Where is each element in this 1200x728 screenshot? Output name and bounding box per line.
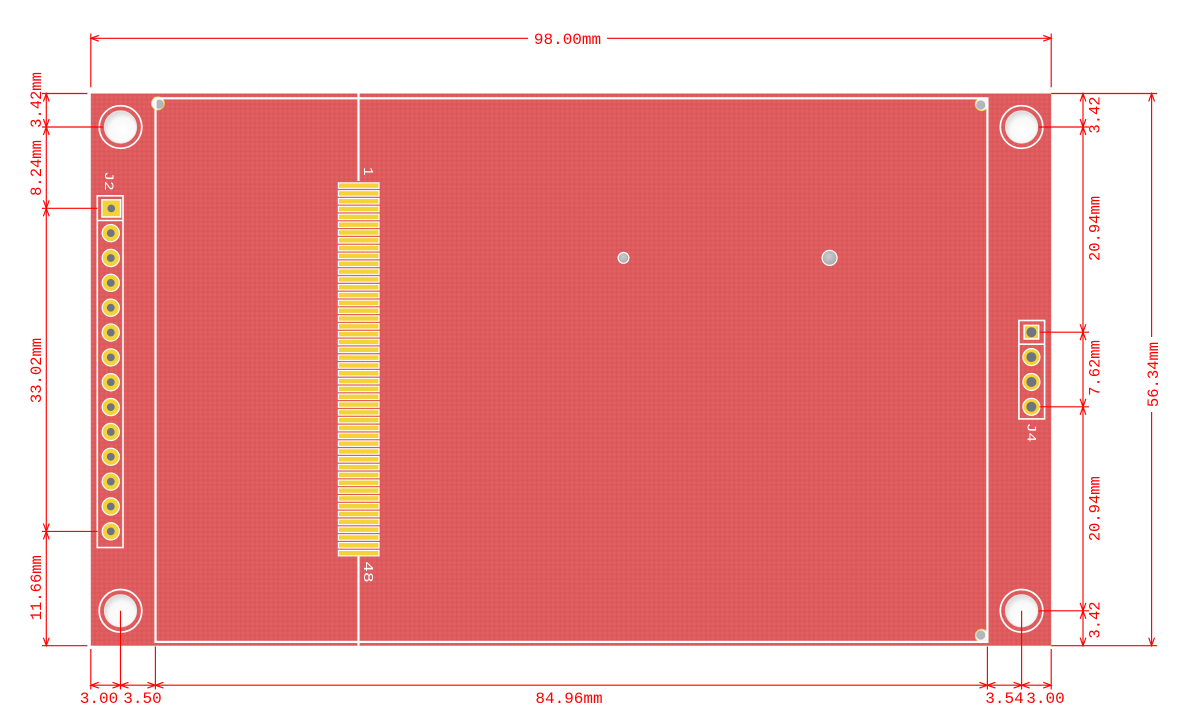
svg-text:84.96mm: 84.96mm [535,690,602,708]
svg-text:56.34mm: 56.34mm [1145,342,1163,407]
svg-text:48: 48 [359,561,375,583]
svg-text:3.54: 3.54 [985,690,1023,708]
svg-text:11.66mm: 11.66mm [28,555,46,620]
svg-text:J2: J2 [101,171,115,191]
svg-text:3.00: 3.00 [1026,690,1064,708]
svg-text:3.42: 3.42 [1087,96,1105,133]
svg-text:3.00: 3.00 [80,690,118,708]
svg-text:33.02mm: 33.02mm [28,338,46,403]
svg-text:3.50: 3.50 [123,690,161,708]
svg-text:98.00mm: 98.00mm [534,31,601,49]
svg-text:1: 1 [359,167,375,175]
svg-text:J4: J4 [1023,423,1037,443]
svg-text:20.94mm: 20.94mm [1087,476,1105,541]
svg-text:20.94mm: 20.94mm [1087,196,1105,261]
svg-text:3.42mm: 3.42mm [28,72,46,128]
svg-text:3.42: 3.42 [1087,601,1105,638]
svg-text:8.24mm: 8.24mm [28,140,46,196]
svg-text:7.62mm: 7.62mm [1087,340,1105,396]
